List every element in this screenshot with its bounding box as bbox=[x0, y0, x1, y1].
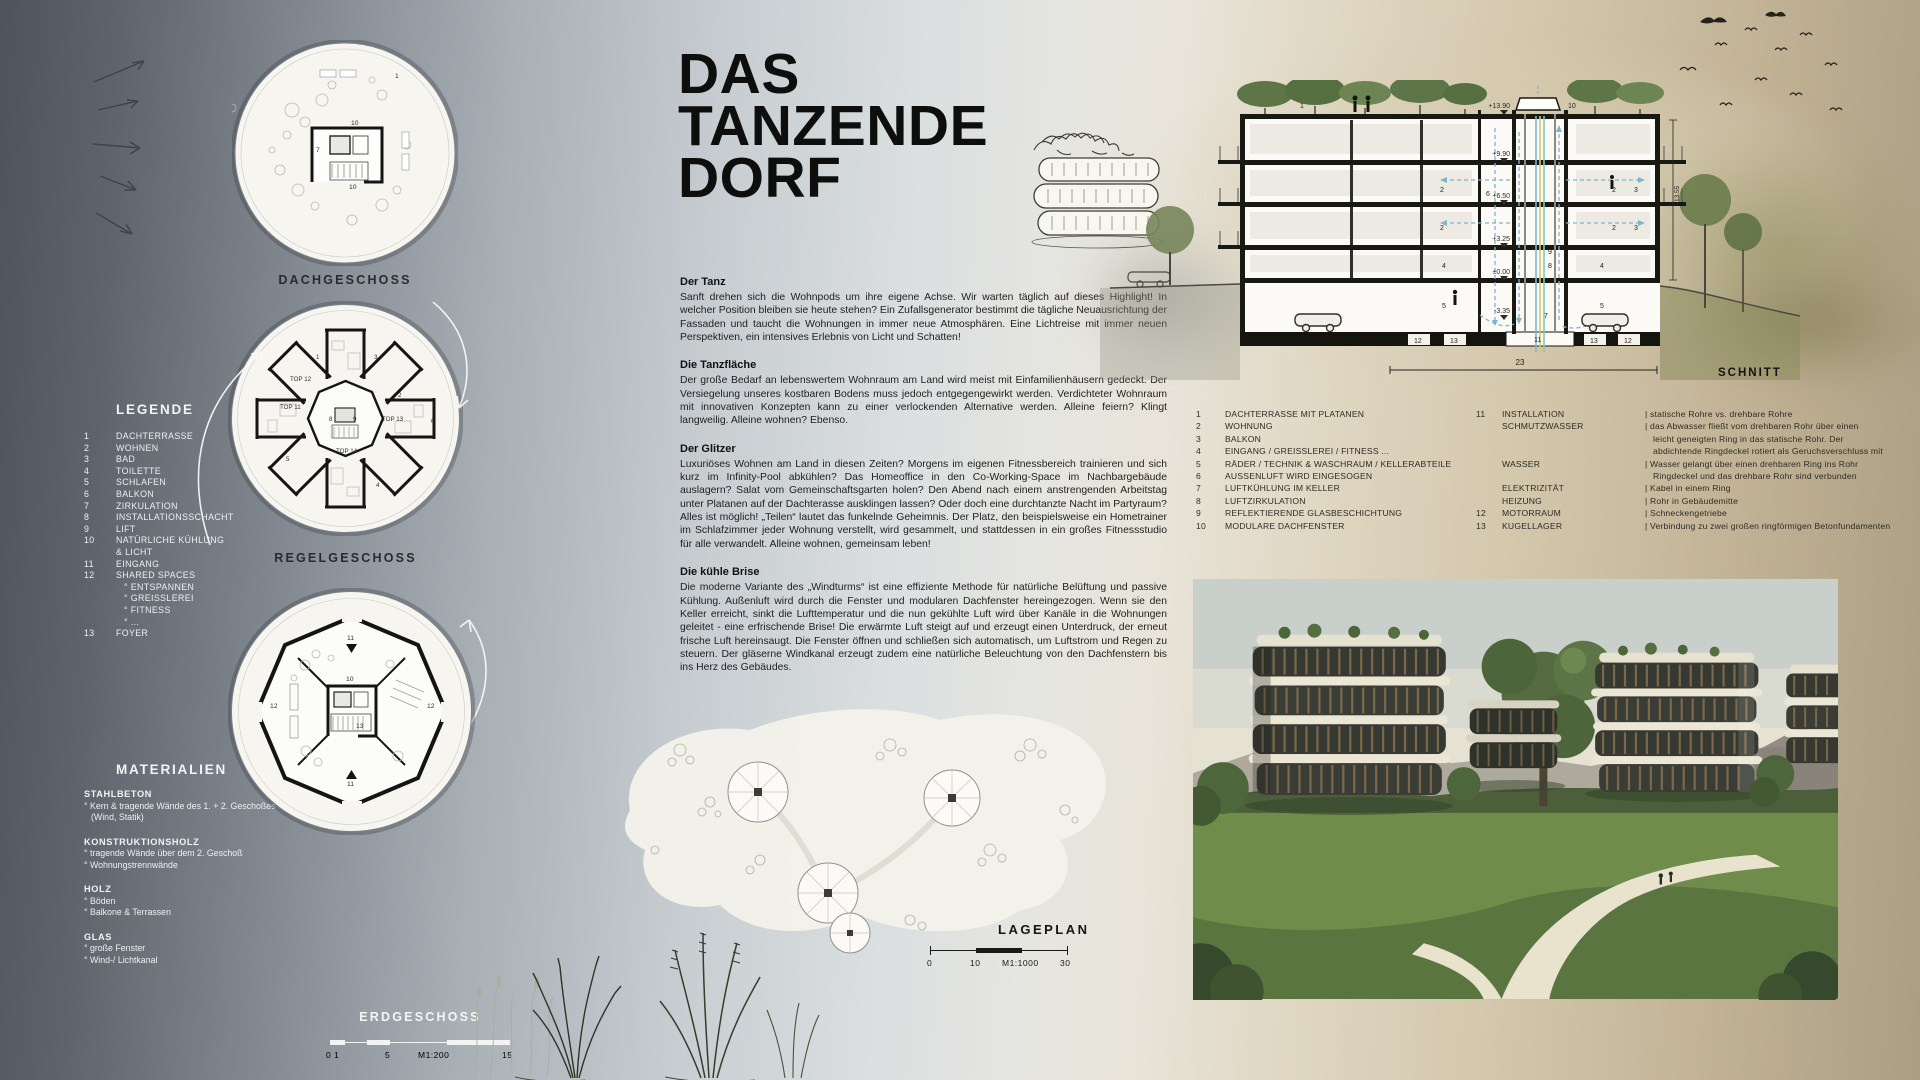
height-dimension: 13.55 bbox=[1674, 185, 1681, 202]
floor-plan-dachgeschoss: 1 10 7 10 bbox=[232, 40, 458, 266]
legend-desc: abdichtende Ringdeckel rotiert als Geruc… bbox=[1645, 446, 1883, 456]
legend-text: ° FITNESS bbox=[116, 605, 171, 617]
title-line: TANZENDE bbox=[678, 100, 988, 152]
legend-text: TOILETTE bbox=[116, 466, 161, 478]
scale-tick: 30 bbox=[1060, 958, 1070, 968]
material-line: ° Balkone & Terrassen bbox=[84, 907, 324, 919]
scale-tick: 0 1 bbox=[326, 1050, 339, 1060]
num-label: 13 bbox=[1450, 338, 1458, 345]
legend-row: & LICHT bbox=[84, 547, 294, 559]
legend-text: WOHNUNG bbox=[1225, 421, 1273, 431]
legend-text: WASSER bbox=[1502, 459, 1540, 469]
legend-num: 9 bbox=[1196, 508, 1201, 518]
plan-number-label: 10 bbox=[346, 676, 354, 683]
legend-text: BALKON bbox=[1225, 434, 1261, 444]
legend-text: EINGANG bbox=[116, 559, 159, 571]
title-line: DORF bbox=[678, 152, 988, 204]
plan-number-label: 7 bbox=[316, 147, 320, 154]
section-paragraph: Alles ist möglich! „Teilen“ lautet das f… bbox=[680, 511, 1167, 551]
legend-num: 11 bbox=[1476, 409, 1485, 419]
legend-num: 9 bbox=[84, 524, 116, 536]
legend-text: ° ... bbox=[116, 617, 139, 629]
scale-bar-siteplan: 0 10 M1:1000 30 bbox=[930, 946, 1080, 972]
plan-number-label: 10 bbox=[349, 184, 357, 191]
legend-num bbox=[84, 617, 116, 629]
num-label: 12 bbox=[1624, 338, 1632, 345]
section-paragraph: Sanft drehen sich die Wohnpods um ihre e… bbox=[680, 291, 1167, 344]
num-label: 4 bbox=[1600, 263, 1604, 270]
legend-num: 1 bbox=[84, 431, 116, 443]
legend-num: 8 bbox=[84, 512, 116, 524]
elevation-label: -3.35 bbox=[1494, 308, 1510, 315]
legend-num: 8 bbox=[1196, 496, 1201, 506]
legend-text: HEIZUNG bbox=[1502, 496, 1542, 506]
legend-text: SCHMUTZWASSER bbox=[1502, 421, 1584, 431]
legend-num: 3 bbox=[84, 454, 116, 466]
legend-text: ° GREISSLEREI bbox=[116, 593, 194, 605]
legend-row: 1DACHTERRASSE bbox=[84, 431, 294, 443]
scale-tick: 0 bbox=[927, 958, 932, 968]
render-building-right bbox=[1585, 643, 1768, 802]
num-label: 12 bbox=[1414, 338, 1422, 345]
num-label: 10 bbox=[1568, 103, 1576, 110]
legend-num: 12 bbox=[1476, 508, 1486, 518]
legend-text: NATÜRLICHE KÜHLUNG bbox=[116, 535, 224, 547]
legend-num bbox=[84, 547, 116, 559]
section-legend-row: 5RÄDER / TECHNIK & WASCHRAUM / KELLERABT… bbox=[1196, 459, 1916, 471]
section-heading: Die Tanzfläche bbox=[680, 359, 1167, 371]
legend-num bbox=[84, 605, 116, 617]
num-label: 2 bbox=[1440, 225, 1444, 232]
plan-number-label: 12 bbox=[427, 703, 435, 710]
num-label: 2 bbox=[1440, 187, 1444, 194]
elevation-label: +9.90 bbox=[1492, 151, 1510, 158]
render-building-left bbox=[1246, 624, 1453, 815]
wind-arrows-sketch bbox=[86, 48, 166, 243]
material-name: GLAS bbox=[84, 932, 324, 944]
legend-text: INSTALLATIONSSCHACHT bbox=[116, 512, 234, 524]
material-line: ° Böden bbox=[84, 896, 324, 908]
legend-text: & LICHT bbox=[116, 547, 153, 559]
legend-desc: | das Abwasser fließt vom drehbaren Rohr… bbox=[1645, 421, 1859, 431]
material-group: HOLZ ° Böden ° Balkone & Terrassen bbox=[84, 884, 324, 919]
width-dimension: 23 bbox=[1516, 358, 1525, 367]
lift-shaft bbox=[330, 136, 350, 154]
legend-num: 3 bbox=[1196, 434, 1201, 444]
legend-num: 2 bbox=[1196, 421, 1201, 431]
elevation-label: +6.50 bbox=[1492, 193, 1510, 200]
material-group: GLAS ° große Fenster ° Wind-/ Lichtkanal bbox=[84, 932, 324, 967]
legend-num: 12 bbox=[84, 570, 116, 582]
num-label: 7 bbox=[1544, 313, 1548, 320]
legend-num: 2 bbox=[84, 443, 116, 455]
section-legend-row: 8LUFTZIRKULATIONHEIZUNG| Rohr in Gebäude… bbox=[1196, 496, 1916, 508]
material-group: KONSTRUKTIONSHOLZ ° tragende Wände über … bbox=[84, 837, 324, 872]
legend-text: LUFTZIRKULATION bbox=[1225, 496, 1306, 506]
plan-title-dachgeschoss: DACHGESCHOSS bbox=[232, 273, 458, 287]
elevation-label: ±0.00 bbox=[1493, 269, 1511, 276]
section-paragraph: Luxuriöses Wohnen am Land in diesen Zeit… bbox=[680, 458, 1167, 511]
section-legend-row: 9REFLEKTIERENDE GLASBESCHICHTUNG12MOTORR… bbox=[1196, 508, 1916, 520]
legend-text: ZIRKULATION bbox=[116, 501, 178, 513]
render-building-edge bbox=[1784, 665, 1838, 764]
legend-text: EINGANG / GREISSLEREI / FITNESS ... bbox=[1225, 446, 1389, 456]
legend-text: ° ENTSPANNEN bbox=[116, 582, 194, 594]
legend-desc: | Kabel in einem Ring bbox=[1645, 483, 1731, 493]
legend-num: 6 bbox=[84, 489, 116, 501]
section-paragraph: Die moderne Variante des „Windturms“ ist… bbox=[680, 581, 1167, 674]
num-label: 3 bbox=[1634, 187, 1638, 194]
legend-num bbox=[84, 582, 116, 594]
legend-text: ELEKTRIZITÄT bbox=[1502, 483, 1564, 493]
legend-row: 11EINGANG bbox=[84, 559, 294, 571]
material-line: ° Wohnungstrennwände bbox=[84, 860, 324, 872]
plan-number-label: 11 bbox=[347, 635, 354, 642]
page-title: DAS TANZENDE DORF bbox=[678, 48, 988, 204]
legend-num bbox=[84, 593, 116, 605]
num-label: 9 bbox=[1548, 249, 1552, 256]
plan-number-label: 1 bbox=[395, 73, 399, 80]
material-line: ° tragende Wände über dem 2. Geschoß bbox=[84, 848, 324, 860]
legend-num: 6 bbox=[1196, 471, 1201, 481]
legend-text: FOYER bbox=[116, 628, 148, 640]
legend-num: 7 bbox=[84, 501, 116, 513]
num-label: 11 bbox=[1534, 337, 1541, 344]
section-heading: Die kühle Brise bbox=[680, 566, 1167, 578]
num-label: 3 bbox=[1634, 225, 1638, 232]
legend-num: 10 bbox=[1196, 521, 1206, 531]
legend-text: INSTALLATION bbox=[1502, 409, 1564, 419]
legend-text: BAD bbox=[116, 454, 135, 466]
scale-label: M1:200 bbox=[418, 1050, 449, 1060]
plan-number-label: 13 bbox=[356, 723, 364, 730]
legend-desc: Ringdeckel und das drehbare Rohr sind ve… bbox=[1645, 471, 1857, 481]
section-legend-row: 3BALKONleicht geneigten Ring in das stat… bbox=[1196, 434, 1916, 446]
section-heading: Der Glitzer bbox=[680, 443, 1167, 455]
legend-desc: | statische Rohre vs. drehbare Rohre bbox=[1645, 409, 1792, 419]
plan-number-label: 10 bbox=[351, 120, 359, 127]
legend-text: DACHTERRASSE bbox=[116, 431, 193, 443]
legend-num: 10 bbox=[84, 535, 116, 547]
floor-plan-erdgeschoss: 11 12 12 10 13 11 bbox=[228, 588, 475, 835]
material-name: KONSTRUKTIONSHOLZ bbox=[84, 837, 324, 849]
material-line: ° große Fenster bbox=[84, 943, 324, 955]
elevation-label: +13.90 bbox=[1488, 103, 1510, 110]
legend-text: LIFT bbox=[116, 524, 136, 536]
material-line: ° Wind-/ Lichtkanal bbox=[84, 955, 324, 967]
num-label: 5 bbox=[1442, 303, 1446, 310]
legend-num: 11 bbox=[84, 559, 116, 571]
legend-num: 7 bbox=[1196, 483, 1201, 493]
scale-tick: 5 bbox=[385, 1050, 390, 1060]
article: Der Tanz Sanft drehen sich die Wohnpods … bbox=[680, 276, 1167, 690]
legend-num: 13 bbox=[1476, 521, 1486, 531]
legend-num: 13 bbox=[84, 628, 116, 640]
elevation-label: +3.25 bbox=[1492, 236, 1510, 243]
legend-text: SHARED SPACES bbox=[116, 570, 195, 582]
num-label: 2 bbox=[1612, 225, 1616, 232]
plants-sketch bbox=[455, 905, 825, 1080]
num-label: 8 bbox=[1548, 263, 1552, 270]
section-legend-row: 2WOHNUNGSCHMUTZWASSER| das Abwasser flie… bbox=[1196, 421, 1916, 433]
num-label: 4 bbox=[1442, 263, 1446, 270]
legend-row: 12SHARED SPACES bbox=[84, 570, 294, 582]
num-label: 5 bbox=[1600, 303, 1604, 310]
legend-text: LUFTKÜHLUNG IM KELLER bbox=[1225, 483, 1340, 493]
roof-window bbox=[1516, 98, 1560, 110]
legend-row: 10NATÜRLICHE KÜHLUNG bbox=[84, 535, 294, 547]
legend-text: MOTORRAUM bbox=[1502, 508, 1561, 518]
legend-text: REFLEKTIERENDE GLASBESCHICHTUNG bbox=[1225, 508, 1402, 518]
section-legend-row: 4EINGANG / GREISSLEREI / FITNESS ...abdi… bbox=[1196, 446, 1916, 458]
legend-text: BALKON bbox=[116, 489, 154, 501]
num-label: 1 bbox=[1300, 103, 1304, 110]
width-dimension-line bbox=[1390, 366, 1657, 374]
legend-text: DACHTERRASSE MIT PLATANEN bbox=[1225, 409, 1364, 419]
scale-tick: 10 bbox=[970, 958, 980, 968]
section-title: SCHNITT bbox=[1718, 367, 1782, 379]
legend-num: 4 bbox=[1196, 446, 1201, 456]
legend-desc: | Verbindung zu zwei großen ringförmigen… bbox=[1645, 521, 1890, 531]
section-legend-row: 1DACHTERRASSE MIT PLATANEN11INSTALLATION… bbox=[1196, 409, 1916, 421]
legend-text: WOHNEN bbox=[116, 443, 158, 455]
section-heading: Der Tanz bbox=[680, 276, 1167, 288]
legend-num: 4 bbox=[84, 466, 116, 478]
legend-num: 5 bbox=[1196, 459, 1201, 469]
num-label: 13 bbox=[1590, 338, 1598, 345]
legend-row: 9LIFT bbox=[84, 524, 294, 536]
legend-text: KUGELLAGER bbox=[1502, 521, 1562, 531]
legend-text: AUSSENLUFT WIRD EINGESOGEN bbox=[1225, 471, 1372, 481]
num-label: 6 bbox=[1486, 191, 1490, 198]
legend-row: 7ZIRKULATION bbox=[84, 501, 294, 513]
legend-row: 8INSTALLATIONSSCHACHT bbox=[84, 512, 294, 524]
birds-sketch bbox=[1660, 10, 1860, 135]
legend-num: 1 bbox=[1196, 409, 1201, 419]
scale-label: M1:1000 bbox=[1002, 958, 1039, 968]
siteplan-title: LAGEPLAN bbox=[998, 922, 1090, 937]
legend-desc: leicht geneigten Ring in das statische R… bbox=[1645, 434, 1844, 444]
title-line: DAS bbox=[678, 48, 988, 100]
presentation-board: 1 10 7 10 DACHGESCHOSS bbox=[0, 0, 1920, 1080]
legend-row: 6BALKON bbox=[84, 489, 294, 501]
section-paragraph: Der große Bedarf an lebenswertem Wohnrau… bbox=[680, 374, 1167, 427]
section-legend-row: 7LUFTKÜHLUNG IM KELLERELEKTRIZITÄT| Kabe… bbox=[1196, 483, 1916, 495]
legend-desc: | Rohr in Gebäudemitte bbox=[1645, 496, 1738, 506]
legend-desc: | Wasser gelangt über einen drehbaren Ri… bbox=[1645, 459, 1858, 469]
section-legend-row: 6AUSSENLUFT WIRD EINGESOGENRingdeckel un… bbox=[1196, 471, 1916, 483]
plan-number-label: 12 bbox=[270, 703, 278, 710]
legend-num: 5 bbox=[84, 477, 116, 489]
legend-row: 5SCHLAFEN bbox=[84, 477, 294, 489]
legend-text: RÄDER / TECHNIK & WASCHRAUM / KELLERABTE… bbox=[1225, 459, 1451, 469]
lift-shaft bbox=[334, 692, 351, 707]
render-image bbox=[1193, 578, 1838, 1000]
legend-row: 2WOHNEN bbox=[84, 443, 294, 455]
legend-desc: | Schneckengetriebe bbox=[1645, 508, 1727, 518]
num-label: 2 bbox=[1612, 187, 1616, 194]
plan-number-label: 11 bbox=[347, 781, 354, 788]
legend-row: 3BAD bbox=[84, 454, 294, 466]
section-legend: 1DACHTERRASSE MIT PLATANEN11INSTALLATION… bbox=[1196, 409, 1916, 533]
legend-row: 4TOILETTE bbox=[84, 466, 294, 478]
car-sketch bbox=[1128, 272, 1170, 287]
legend-text: SCHLAFEN bbox=[116, 477, 166, 489]
material-name: HOLZ bbox=[84, 884, 324, 896]
legend-title: LEGENDE bbox=[116, 402, 294, 417]
legend-text: MODULARE DACHFENSTER bbox=[1225, 521, 1345, 531]
section-legend-row: 10MODULARE DACHFENSTER13KUGELLAGER| Verb… bbox=[1196, 521, 1916, 533]
